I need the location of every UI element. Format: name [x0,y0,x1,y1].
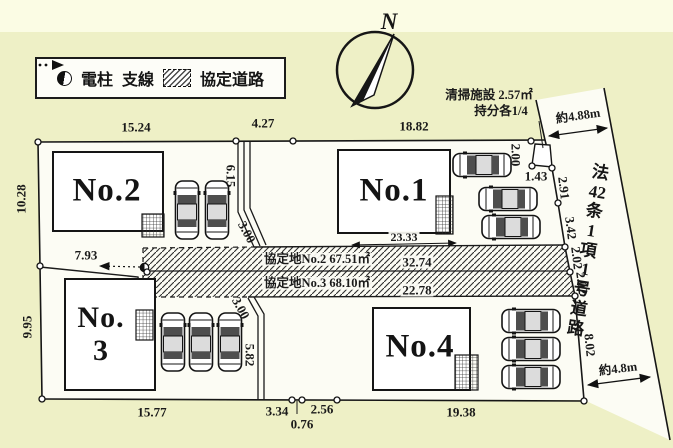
car-icon [502,308,560,335]
car-icon [160,313,187,371]
utility-pole-legend-icon [57,71,72,86]
dim-lower-walkway-length: 5.82 [244,344,257,367]
dim-no1-south: 23.33 [389,231,420,243]
road-name-seg: 道 [569,299,589,320]
dim-south-2: 3.34 [266,405,289,418]
agreement-lower-label: 協定地No.3 68.10㎡ [262,277,372,290]
agreement-upper-label: 協定地No.2 67.51㎡ [262,253,372,266]
porch-no3 [136,310,153,340]
cleaning-facility-note-line2: 持分各1/4 [474,105,527,118]
dim-north-2: 4.27 [252,117,275,130]
road-name-seg: 法 [590,163,610,184]
legend-road-label: 協定道路 [200,66,264,90]
agreement-upper-length: 32.74 [400,256,433,269]
site-plan-scan: 電柱 支線 協定道路 N No.1 No.2 No. 3 No.4 協定地No.… [0,0,673,448]
car-icon [479,186,537,213]
dim-north-1: 15.24 [121,121,150,134]
lot-no2-label: No.2 [72,175,141,206]
road-name-seg: 項 [578,241,598,262]
dim-south-1: 15.77 [137,406,166,419]
car-icon [204,181,231,239]
car-icon [482,214,540,241]
dim-east-1: 2.91 [556,176,572,200]
dim-south-4: 2.56 [311,403,334,416]
car-icon [188,313,215,371]
dim-facility-height: 2.00 [510,144,523,167]
porch-no4 [455,355,478,390]
road-name-seg: 1 [585,222,596,242]
dim-upper-walkway-length: 6.15 [225,165,238,188]
car-icon [502,364,560,391]
porch-no1 [436,196,453,234]
dim-south-3: 0.76 [291,418,314,431]
guy-wire-legend-icon [37,59,67,71]
car-icon [502,336,560,363]
agreement-lower-length: 22.78 [400,284,433,297]
cleaning-facility [532,144,552,167]
compass-icon [337,32,413,108]
legend-pole-label: 電柱 [81,66,113,90]
dim-facility-width: 1.43 [525,170,548,183]
road-name-seg: 条 [584,202,604,223]
lot-no1-label: No.1 [359,175,428,206]
legend-guy-label: 支線 [122,66,154,90]
lot-no4-label: No.4 [385,331,454,362]
dim-north-3: 18.82 [399,120,428,133]
lot-no3-label-line1: No. [77,304,124,333]
porch-no2 [142,214,164,237]
cleaning-facility-note-line1: 清掃施設 2.57㎡ [445,89,533,102]
compass-north-label: N [381,9,398,35]
car-icon [174,181,201,239]
road-name-seg: 路 [566,318,586,339]
road-name-seg: 1 [579,261,590,281]
car-icon [453,152,511,179]
road-name-seg: 号 [572,279,592,300]
agreement-road-legend-icon [163,69,191,87]
legend-box: 電柱 支線 協定道路 [35,57,286,99]
dim-west-upper: 10.28 [15,184,28,213]
dim-south-5: 19.38 [446,406,475,419]
dim-west-lower: 9.95 [21,316,34,339]
lot-no3-label-line2: 3 [93,337,109,366]
dim-no2-south: 7.93 [75,249,98,262]
